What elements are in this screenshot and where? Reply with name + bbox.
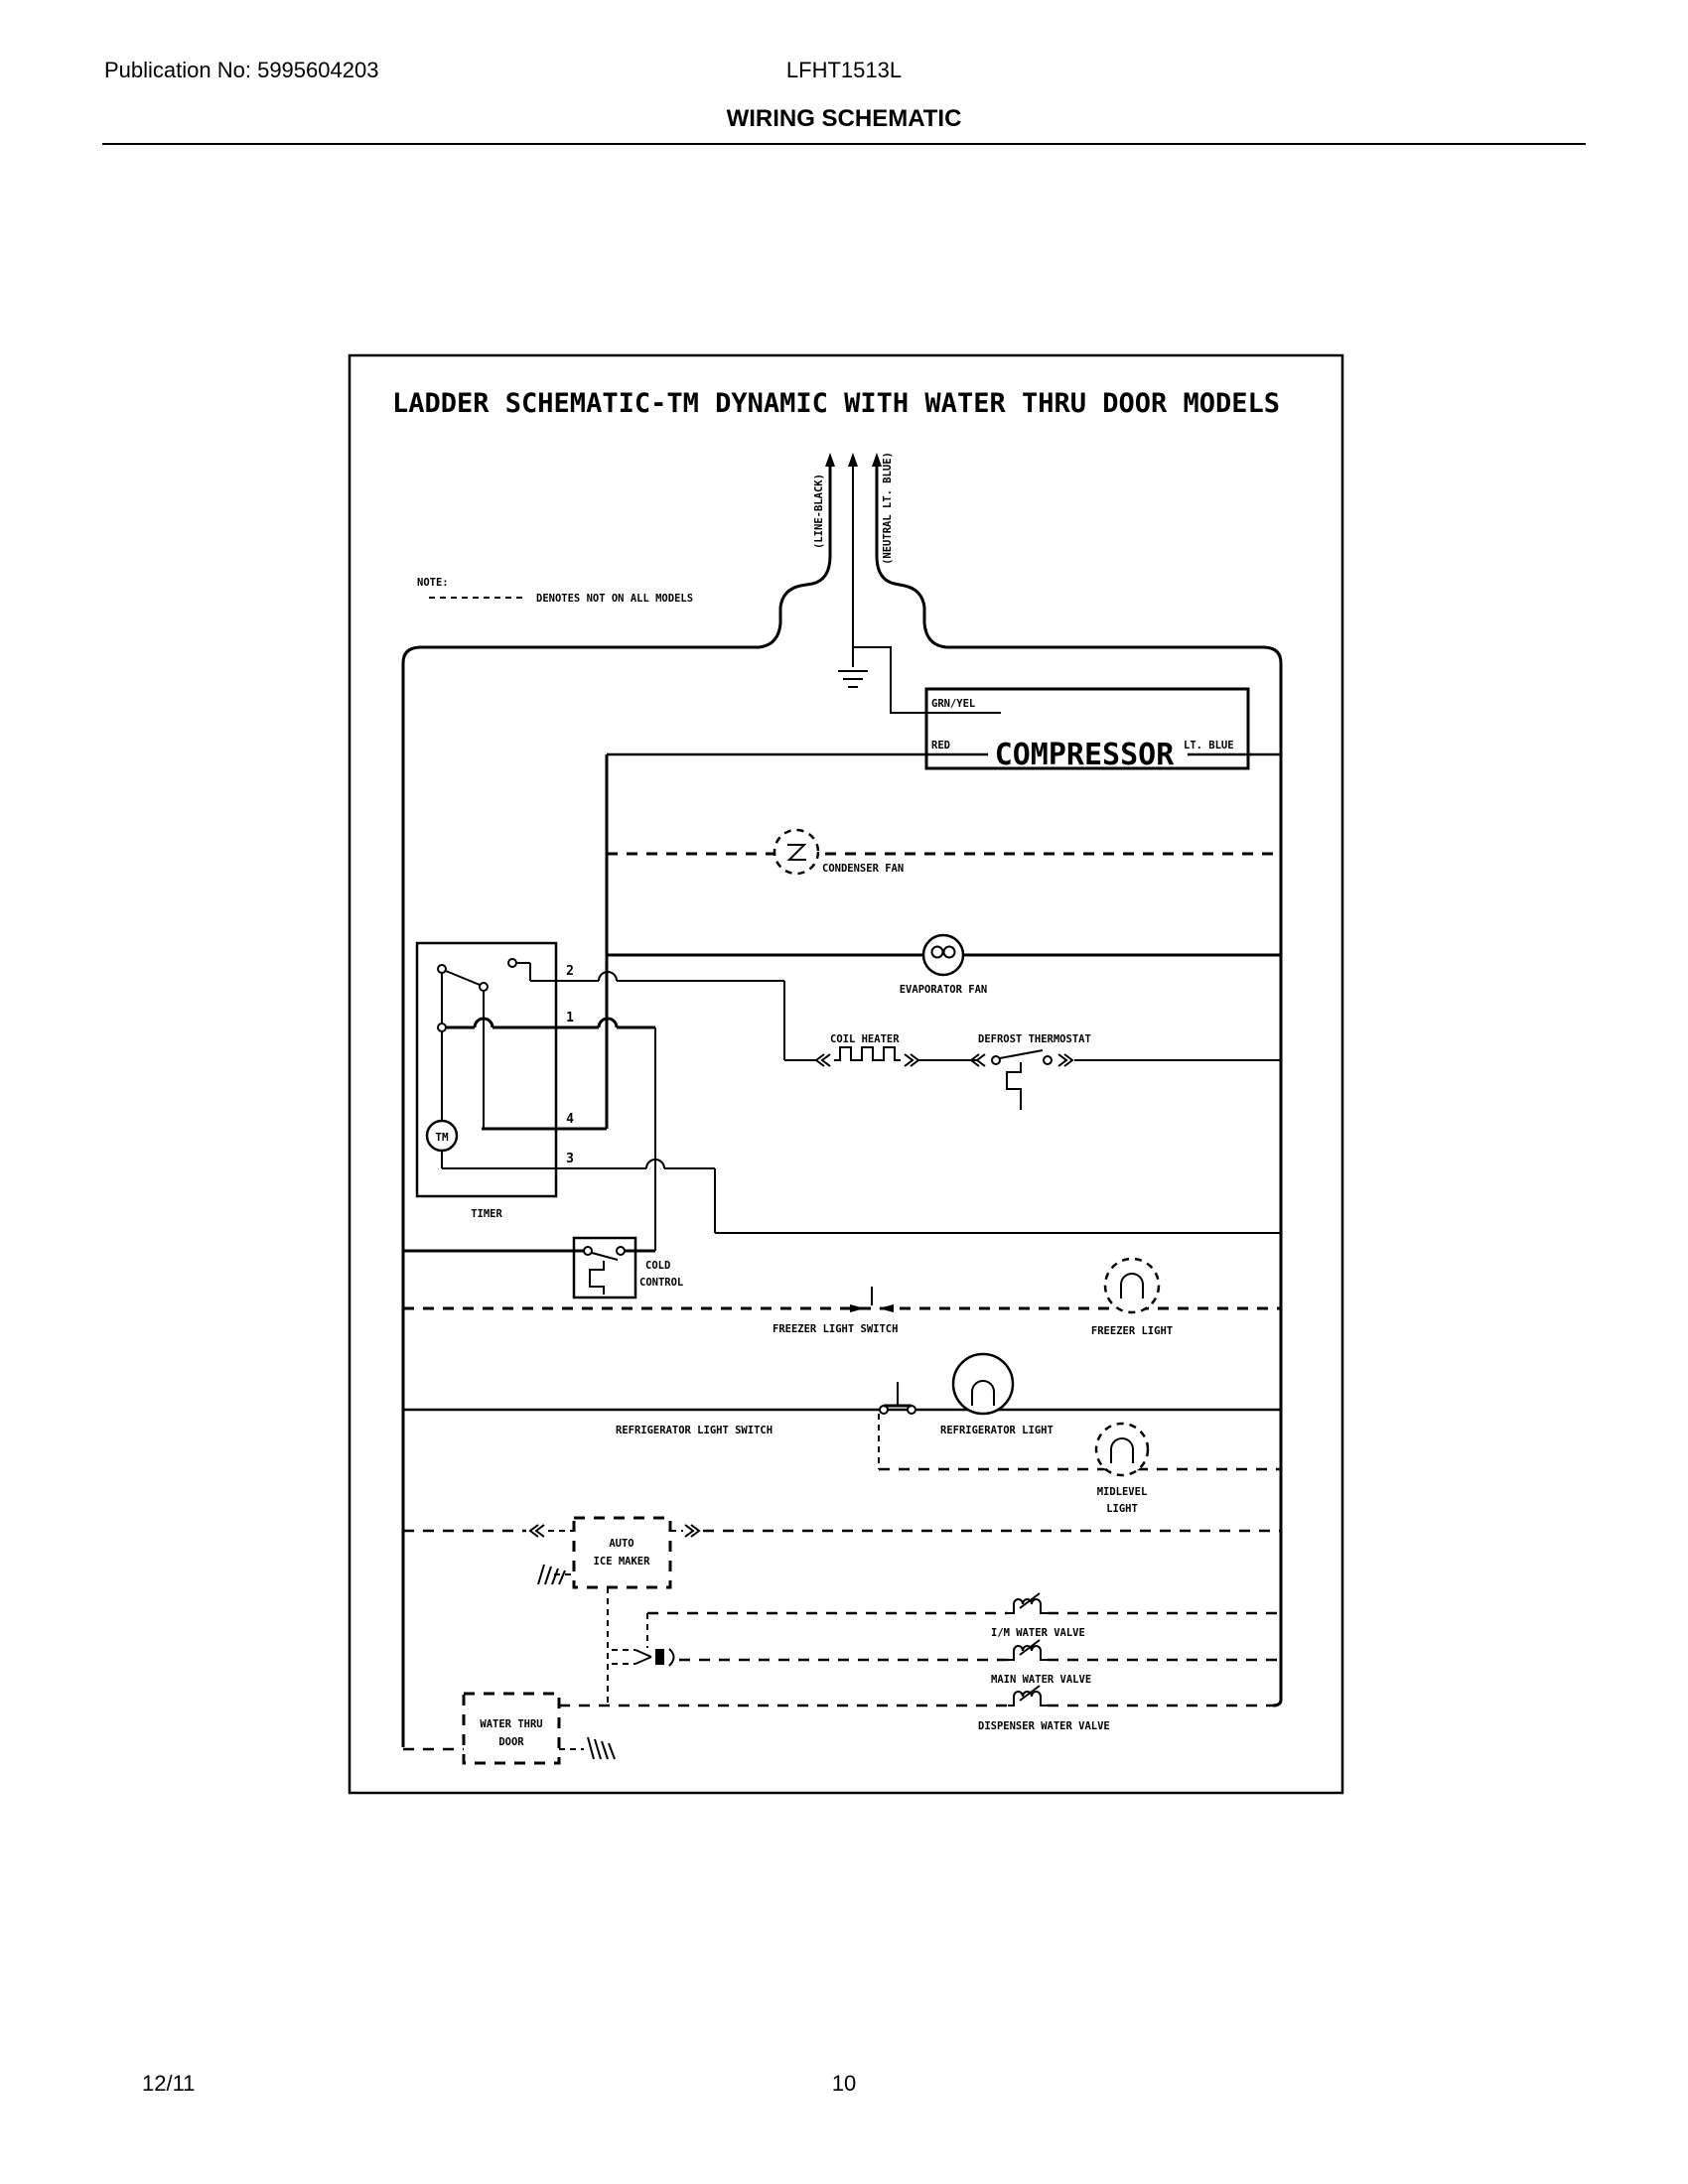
solenoid-valve-icon: [1008, 1640, 1048, 1660]
cold-control-contact: [584, 1247, 592, 1255]
refrigerator-light-circuit: REFRIGERATOR LIGHT SWITCH REFRIGERATOR L…: [403, 1354, 1281, 1469]
arrow-icon: [848, 453, 858, 467]
arrow-icon: [872, 453, 882, 467]
connector-icon: [905, 1054, 918, 1066]
timer-contact: [480, 983, 488, 991]
plug-connector-icon: [669, 1649, 674, 1666]
connector-icon: [530, 1525, 544, 1537]
line-black-label: (LINE-BLACK): [813, 474, 825, 549]
timer: TIMER TM 2 1 4 3: [417, 943, 574, 1220]
note-label: NOTE:: [417, 577, 449, 589]
terminal-2-label: 2: [566, 964, 574, 979]
evaporator-fan: EVAPORATOR FAN: [607, 935, 1281, 996]
condenser-fan-label: CONDENSER FAN: [822, 863, 904, 875]
ground-symbol-icon: [838, 671, 868, 687]
compressor: GRN/YEL RED LT. BLUE COMPRESSOR: [607, 689, 1281, 772]
freezer-light-switch-label: FREEZER LIGHT SWITCH: [773, 1323, 898, 1335]
main-water-valve-label: MAIN WATER VALVE: [991, 1674, 1091, 1686]
timer-wire: [516, 963, 530, 981]
defrost-thermostat-label: DEFROST THERMOSTAT: [978, 1033, 1091, 1045]
coil-heater-icon: [834, 1047, 901, 1060]
thermostat-contact: [1044, 1056, 1052, 1064]
neutral-label: (NEUTRAL LT. BLUE): [882, 452, 894, 565]
timer-contact: [508, 959, 516, 967]
cold-control-label-2: CONTROL: [639, 1277, 683, 1289]
terminal-3-wire: [442, 1168, 1281, 1233]
water-thru-door-label-2: DOOR: [498, 1736, 524, 1748]
cold-control-contact: [617, 1247, 625, 1255]
schematic-title: LADDER SCHEMATIC-TM DYNAMIC WITH WATER T…: [392, 388, 1280, 419]
power-lines: (LINE-BLACK) (NEUTRAL LT. BLUE): [403, 452, 1281, 1747]
connector-icon: [1058, 1054, 1072, 1066]
defrost-circuit: COIL HEATER DEFROST THERMOSTAT: [784, 1033, 1281, 1110]
auto-ice-maker-box: [574, 1518, 670, 1587]
cold-control: COLD CONTROL: [403, 1238, 683, 1297]
arrow-icon: [879, 1304, 894, 1312]
switch-blade: [446, 971, 480, 985]
terminal-1-label: 1: [566, 1011, 574, 1025]
evaporator-fan-label: EVAPORATOR FAN: [900, 984, 988, 996]
water-thru-door-label-1: WATER THRU: [480, 1718, 542, 1730]
chassis-ground-icon: [559, 1737, 615, 1759]
note-text: DENOTES NOT ON ALL MODELS: [536, 593, 693, 605]
timer-motor-label: TM: [435, 1131, 449, 1144]
midlevel-light-label-2: LIGHT: [1106, 1503, 1138, 1515]
im-water-valve-label: I/M WATER VALVE: [991, 1627, 1085, 1639]
neutral-wire: [877, 465, 1281, 1706]
thermostat-sensor-wire: [1007, 1062, 1021, 1110]
timer-contact: [438, 965, 446, 973]
freezer-light-icon: [1105, 1259, 1159, 1312]
document-page: Publication No: 5995604203 LFHT1513L WIR…: [0, 0, 1688, 2184]
compressor-grn-yel-label: GRN/YEL: [931, 698, 975, 710]
terminal-3-label: 3: [566, 1152, 574, 1166]
connector-icon: [685, 1525, 699, 1537]
footer-page-number: 10: [0, 2071, 1688, 2097]
condenser-fan: CONDENSER FAN: [607, 830, 1281, 875]
chassis-ground-icon: [538, 1565, 574, 1584]
refrigerator-light-icon: [953, 1354, 1013, 1414]
refrigerator-light-label: REFRIGERATOR LIGHT: [940, 1425, 1054, 1436]
bellows-icon: [590, 1261, 604, 1295]
freezer-light-circuit: FREEZER LIGHT SWITCH FREEZER LIGHT: [403, 1259, 1281, 1337]
arrow-icon: [850, 1304, 865, 1312]
midlevel-light-circuit: MIDLEVEL LIGHT: [879, 1424, 1281, 1515]
plug-connector-icon: [655, 1649, 664, 1665]
solenoid-valve-icon: [1008, 1686, 1048, 1706]
connector-icon: [816, 1054, 830, 1066]
compressor-lt-blue-label: LT. BLUE: [1184, 740, 1234, 751]
schematic-border: [350, 355, 1342, 1793]
water-thru-door: WATER THRU DOOR: [403, 1694, 615, 1763]
refrigerator-light-switch-label: REFRIGERATOR LIGHT SWITCH: [616, 1425, 773, 1436]
timer-label: TIMER: [471, 1208, 502, 1220]
wiring-schematic: LADDER SCHEMATIC-TM DYNAMIC WITH WATER T…: [0, 0, 1688, 2184]
connector-funnel-icon: [635, 1650, 651, 1664]
midlevel-light-label-1: MIDLEVEL: [1097, 1486, 1148, 1498]
compressor-red-label: RED: [931, 740, 950, 751]
auto-ice-maker-label-1: AUTO: [609, 1538, 633, 1550]
switch-blade: [592, 1253, 618, 1260]
note: NOTE: DENOTES NOT ON ALL MODELS: [417, 577, 693, 605]
arrow-icon: [825, 453, 835, 467]
freezer-light-label: FREEZER LIGHT: [1091, 1325, 1173, 1337]
timer-contact: [438, 1024, 446, 1031]
solenoid-valve-icon: [1008, 1593, 1048, 1613]
connector-lead-wire: [612, 1650, 635, 1664]
midlevel-light-icon: [1096, 1424, 1148, 1475]
water-valve-circuits: I/M WATER VALVE MAIN WATER VALVE DISPENS…: [559, 1593, 1281, 1732]
thermostat-contact: [992, 1056, 1000, 1064]
auto-ice-maker-label-2: ICE MAKER: [594, 1556, 651, 1568]
ice-maker-circuit: AUTO ICE MAKER: [403, 1518, 1281, 1706]
dispenser-water-valve-label: DISPENSER WATER VALVE: [978, 1720, 1110, 1732]
evaporator-fan-motor-icon: [923, 935, 963, 975]
compressor-label: COMPRESSOR: [995, 738, 1176, 772]
switch-blade: [1000, 1050, 1043, 1058]
coil-heater-label: COIL HEATER: [830, 1033, 900, 1045]
terminal-4-label: 4: [566, 1112, 574, 1127]
cold-control-label-1: COLD: [645, 1260, 670, 1272]
